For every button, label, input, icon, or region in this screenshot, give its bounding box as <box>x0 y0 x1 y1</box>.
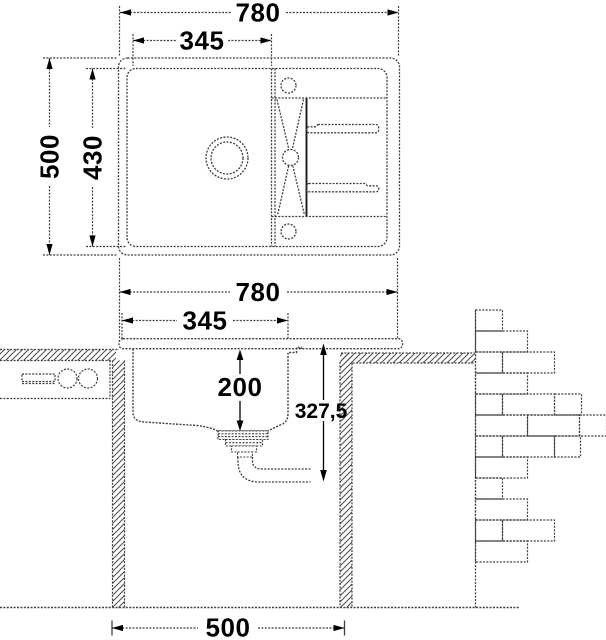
knob-right <box>79 369 98 388</box>
dim-bowl-depth-label: 200 <box>218 372 263 402</box>
sink-outer-rim <box>119 58 400 255</box>
drain-assembly <box>218 431 268 457</box>
dim-total-depth-label: 327,5 <box>295 400 348 423</box>
faucet-hole-top <box>281 78 296 93</box>
sink-rim-section <box>119 339 403 349</box>
knob-left <box>58 369 77 388</box>
brick-wall <box>476 310 606 608</box>
countertop-left <box>0 350 119 361</box>
strip-cross <box>277 100 305 216</box>
drawing-svg: 780 345 500 430 780 345 <box>0 0 606 640</box>
cabinet-front <box>0 361 110 399</box>
drainboard-groove-1 <box>307 125 379 133</box>
dim-mid-width-label: 780 <box>236 277 281 307</box>
sink-top-view <box>119 58 400 255</box>
dim-left-height-label: 500 <box>35 134 65 179</box>
cabinet-wall-left <box>113 361 125 608</box>
cabinet-wall-right <box>340 353 352 608</box>
drain-inner-circle <box>211 142 243 174</box>
drawer-handle <box>22 374 55 382</box>
sink-inner-edge <box>127 69 387 247</box>
drainboard-groove-2 <box>307 184 379 192</box>
dim-top-bowl-width-label: 345 <box>180 26 225 56</box>
dim-top-width-label: 780 <box>236 0 281 28</box>
dim-mid-bowl-width-label: 345 <box>183 306 228 336</box>
drain-pipe <box>238 457 311 482</box>
sink-technical-drawing: 780 345 500 430 780 345 <box>0 0 606 640</box>
dim-left-inner-height-label: 430 <box>78 135 108 180</box>
drain-outer-circle <box>206 137 248 179</box>
dim-cabinet-width-label: 500 <box>206 613 251 640</box>
faucet-hole-bottom <box>281 224 296 239</box>
countertop-right <box>341 353 475 363</box>
